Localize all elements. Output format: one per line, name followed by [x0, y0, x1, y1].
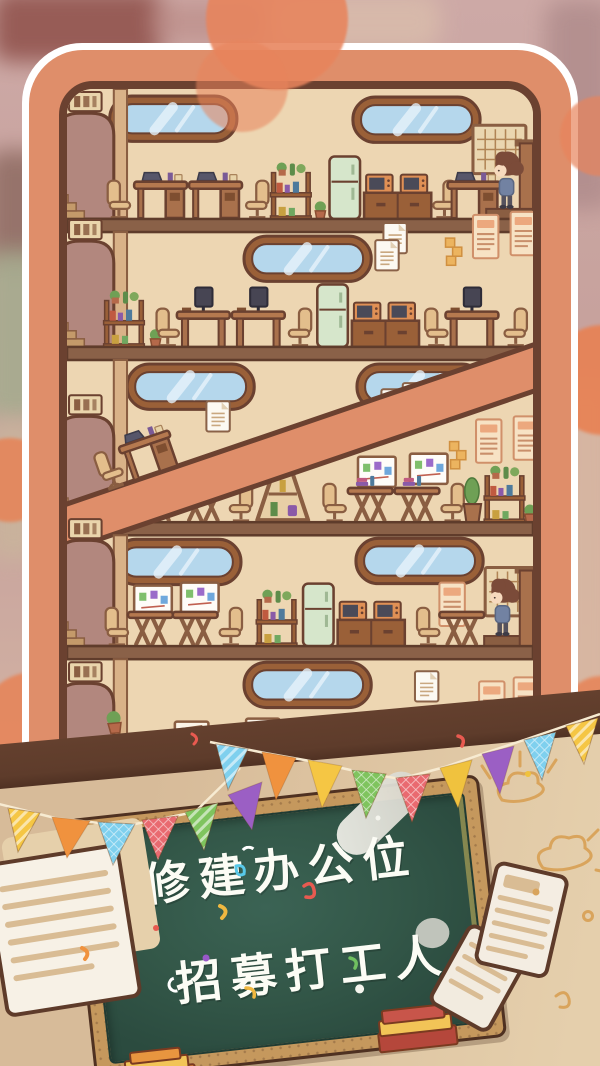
document-icon — [375, 240, 398, 270]
floor-slab — [67, 646, 533, 659]
paper-stack-left — [0, 817, 168, 1016]
building-frame — [22, 43, 578, 807]
building-interior — [59, 81, 541, 776]
floor-slab — [67, 347, 533, 360]
document-icon — [415, 671, 438, 701]
plant-on-beam — [106, 711, 122, 734]
fridge — [317, 284, 348, 346]
floor-slab — [67, 219, 533, 232]
window — [353, 97, 480, 142]
building-cross-section — [67, 89, 533, 768]
wall-pillar — [520, 571, 533, 647]
game-screen: 修建办公位 招募打工人 — [0, 0, 600, 1066]
potted-plant-icon — [524, 505, 533, 523]
wall-poster — [473, 215, 498, 258]
whiteboard-diagram — [181, 583, 219, 613]
fridge — [303, 584, 334, 646]
document-icon — [206, 401, 229, 431]
fridge — [330, 156, 361, 218]
door-column — [114, 232, 127, 347]
foreground-circle — [196, 40, 288, 132]
window — [114, 539, 241, 584]
wall-pillar — [520, 143, 533, 219]
decorations-layer — [0, 700, 600, 1066]
wall-poster — [511, 212, 533, 255]
window — [356, 538, 483, 583]
paper-stack-right — [425, 854, 568, 1043]
window — [127, 364, 254, 409]
whiteboard-diagram — [410, 454, 448, 484]
wall-poster — [514, 416, 533, 459]
potted-plant-icon — [315, 201, 326, 219]
building-frame-inner — [29, 50, 571, 800]
wall-poster — [476, 419, 501, 462]
window — [244, 236, 371, 281]
